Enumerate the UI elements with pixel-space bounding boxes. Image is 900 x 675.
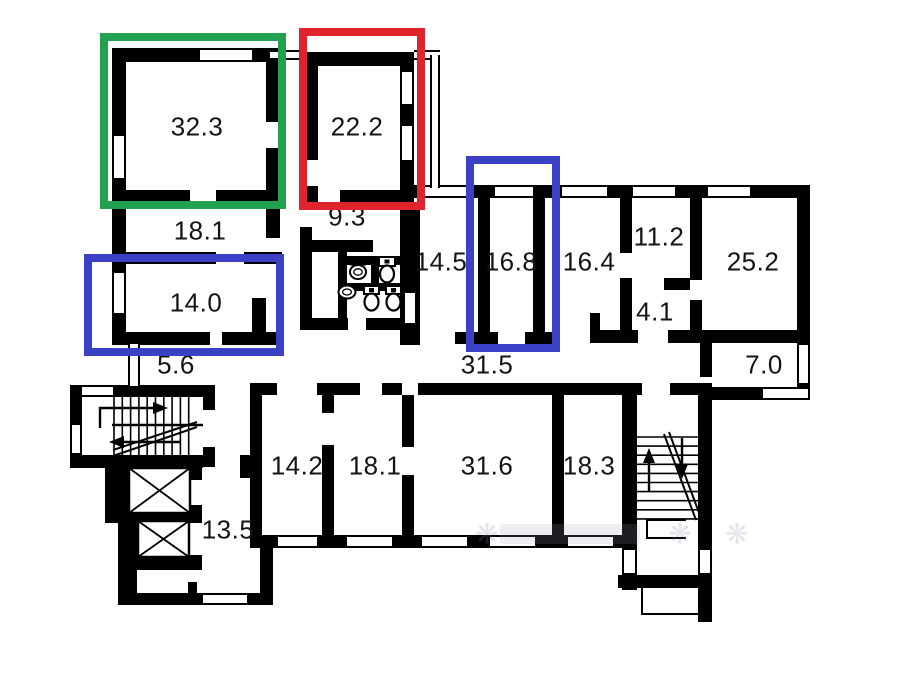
- window: [347, 535, 392, 548]
- room-area-label: 11.2: [634, 222, 685, 253]
- wall-segment: [402, 475, 414, 540]
- wall-segment: [590, 330, 622, 343]
- window: [698, 550, 712, 573]
- wall-segment: [300, 318, 348, 330]
- wall-segment: [113, 385, 215, 397]
- wall-segment: [618, 575, 712, 588]
- wall-segment: [266, 204, 280, 238]
- highlight-blue-box-room-16-8: [466, 156, 560, 352]
- entry-porch-outline: [642, 588, 698, 614]
- window: [70, 425, 82, 453]
- highlight-blue-box-room-14-0: [84, 254, 284, 356]
- wall-segment: [137, 555, 202, 570]
- wall-segment: [668, 330, 810, 343]
- wall-segment: [322, 383, 334, 413]
- window: [622, 550, 637, 573]
- wall-segment: [203, 447, 215, 467]
- wall-segment: [240, 455, 250, 478]
- wall-segment: [382, 383, 402, 395]
- window: [562, 185, 607, 198]
- wall-segment: [260, 548, 273, 605]
- window: [797, 345, 810, 383]
- wall-segment: [392, 535, 422, 548]
- wall-segment: [203, 385, 215, 410]
- wall-segment: [188, 582, 197, 595]
- stair-up-arrow: [100, 402, 168, 428]
- wall-segment: [418, 383, 622, 395]
- wall-segment: [346, 283, 403, 291]
- wall-segment: [664, 278, 690, 290]
- left-staircase: [100, 397, 203, 456]
- wall-segment: [300, 240, 373, 252]
- wall-segment: [620, 330, 638, 343]
- window: [422, 535, 467, 548]
- wall-segment: [188, 505, 202, 523]
- wall-segment: [698, 395, 712, 550]
- window: [403, 293, 417, 323]
- window: [633, 185, 675, 198]
- wall-segment: [700, 343, 712, 377]
- window: [763, 387, 808, 400]
- wall-segment: [402, 395, 414, 447]
- room-area-label: 18.1: [349, 451, 402, 482]
- wall-segment: [118, 513, 190, 523]
- watermark-glyph: ❋: [725, 518, 748, 551]
- wall-segment: [70, 455, 203, 468]
- watermark-smudge: [500, 524, 640, 544]
- wall-segment: [188, 460, 202, 480]
- wall-segment: [620, 197, 632, 253]
- room-area-label: 7.0: [745, 350, 783, 381]
- opening-strip: [430, 55, 440, 188]
- highlight-red-box: [299, 28, 425, 210]
- room-area-label: 4.1: [636, 297, 674, 328]
- stair-down-arrow: [676, 438, 688, 479]
- room-area-label: 16.4: [563, 247, 616, 278]
- stair-up-arrow: [643, 448, 655, 492]
- room-area-label: 18.3: [563, 451, 616, 482]
- room-area-label: 31.6: [461, 451, 514, 482]
- elevator-icon: [129, 468, 190, 513]
- window: [278, 535, 317, 548]
- wall-segment: [690, 197, 702, 280]
- window: [708, 185, 750, 198]
- wall-segment: [322, 445, 334, 540]
- watermark-glyph: ❋: [475, 518, 498, 551]
- window: [203, 593, 247, 605]
- elevator-icon: [138, 521, 189, 557]
- sink-icon: [350, 265, 366, 280]
- room-area-label: 14.2: [271, 451, 324, 482]
- room-area-label: 18.1: [174, 216, 227, 247]
- floor-plan: 32.322.218.19.314.05.614.516.816.411.225…: [0, 0, 900, 675]
- wall-segment: [698, 588, 712, 622]
- wall-segment: [797, 185, 810, 345]
- window: [82, 385, 113, 397]
- room-area-label: 13.5: [202, 515, 255, 546]
- stair-down-arrow: [109, 436, 180, 448]
- room-area-label: 31.5: [461, 350, 514, 381]
- room-area-label: 14.5: [415, 247, 468, 278]
- watermark-glyph: ❋: [668, 518, 691, 551]
- wall-segment: [670, 383, 712, 395]
- room-area-label: 25.2: [727, 247, 780, 278]
- wall-segment: [371, 256, 379, 285]
- highlight-green-box: [100, 33, 286, 209]
- wall-segment: [317, 535, 347, 548]
